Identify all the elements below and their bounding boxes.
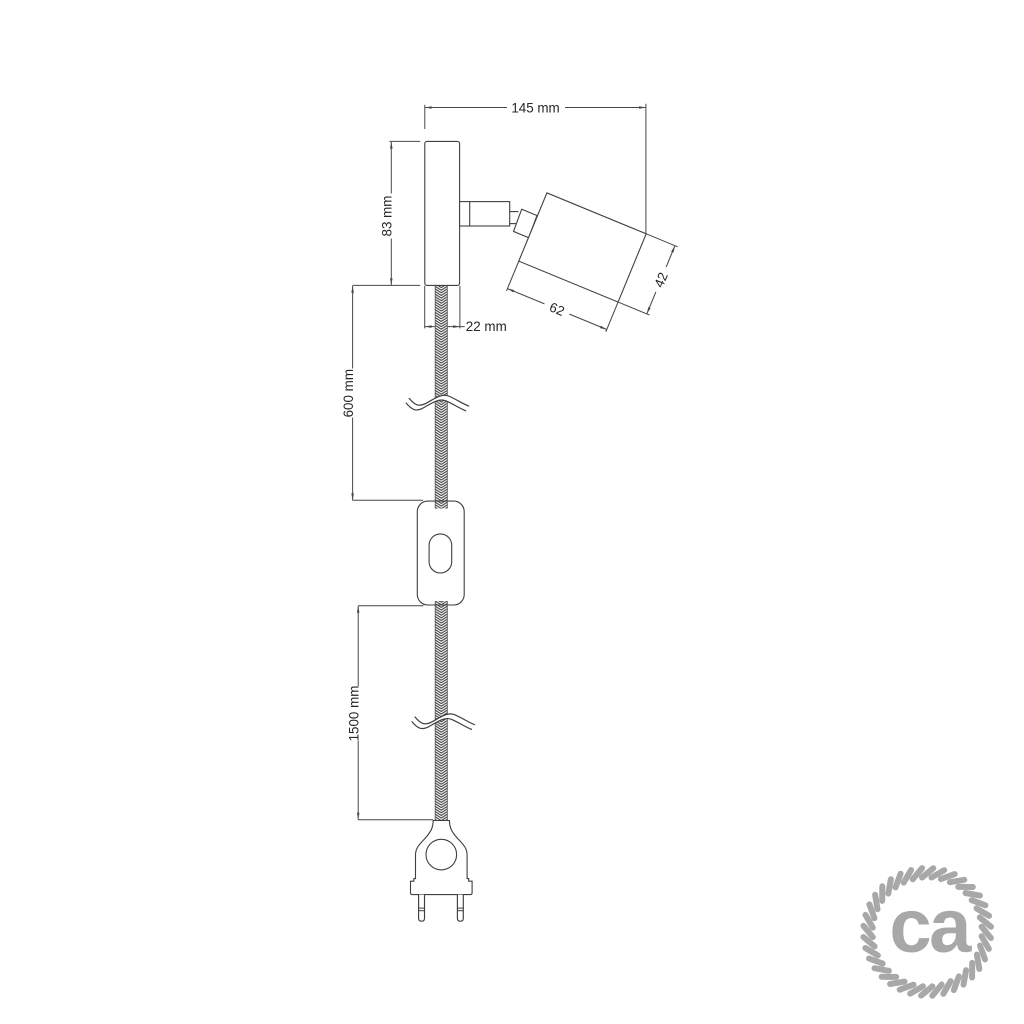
svg-text:ca: ca: [889, 884, 972, 969]
svg-text:600 mm: 600 mm: [341, 369, 356, 417]
svg-text:22 mm: 22 mm: [466, 319, 507, 334]
svg-text:1500 mm: 1500 mm: [347, 686, 362, 742]
svg-text:145 mm: 145 mm: [511, 100, 559, 115]
svg-text:83 mm: 83 mm: [379, 196, 394, 237]
